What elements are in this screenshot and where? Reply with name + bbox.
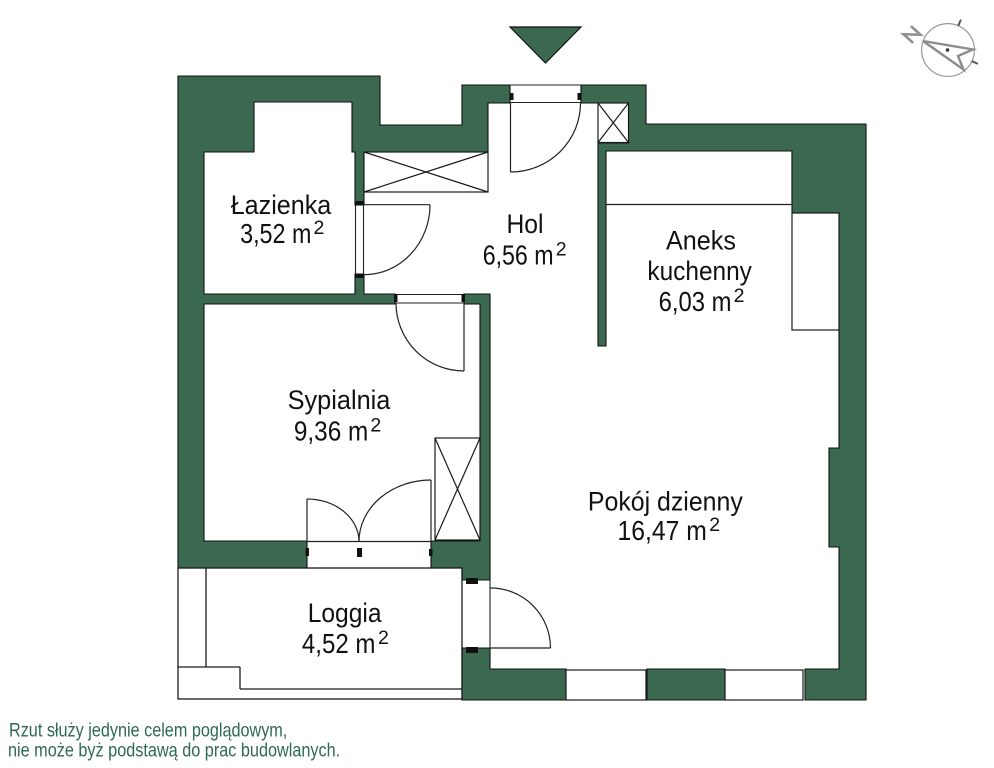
svg-text:Sypialnia: Sypialnia	[288, 385, 391, 415]
svg-text:16,47 m: 16,47 m	[618, 515, 707, 546]
svg-text:nie może byż podstawą do prac: nie może byż podstawą do prac budowlanyc…	[8, 741, 340, 762]
svg-text:2: 2	[556, 238, 567, 260]
svg-text:Loggia: Loggia	[308, 598, 382, 628]
svg-text:4,52 m: 4,52 m	[302, 628, 376, 659]
svg-text:2: 2	[370, 414, 381, 436]
svg-text:9,36 m: 9,36 m	[294, 416, 368, 447]
svg-text:6,56 m: 6,56 m	[483, 240, 554, 271]
svg-text:Hol: Hol	[507, 209, 544, 239]
svg-text:Łazienka: Łazienka	[231, 190, 332, 220]
svg-text:2: 2	[734, 285, 745, 307]
svg-text:2: 2	[314, 217, 325, 239]
svg-text:Aneks: Aneks	[666, 226, 736, 256]
svg-text:kuchenny: kuchenny	[647, 256, 752, 286]
svg-text:Rzut służy jedynie celem poglą: Rzut służy jedynie celem poglądowym,	[9, 721, 287, 742]
svg-text:6,03 m: 6,03 m	[659, 286, 732, 317]
svg-text:2: 2	[378, 627, 389, 649]
svg-text:2: 2	[709, 514, 720, 536]
svg-text:Pokój dzienny: Pokój dzienny	[588, 487, 744, 517]
svg-text:3,52 m: 3,52 m	[240, 218, 311, 249]
